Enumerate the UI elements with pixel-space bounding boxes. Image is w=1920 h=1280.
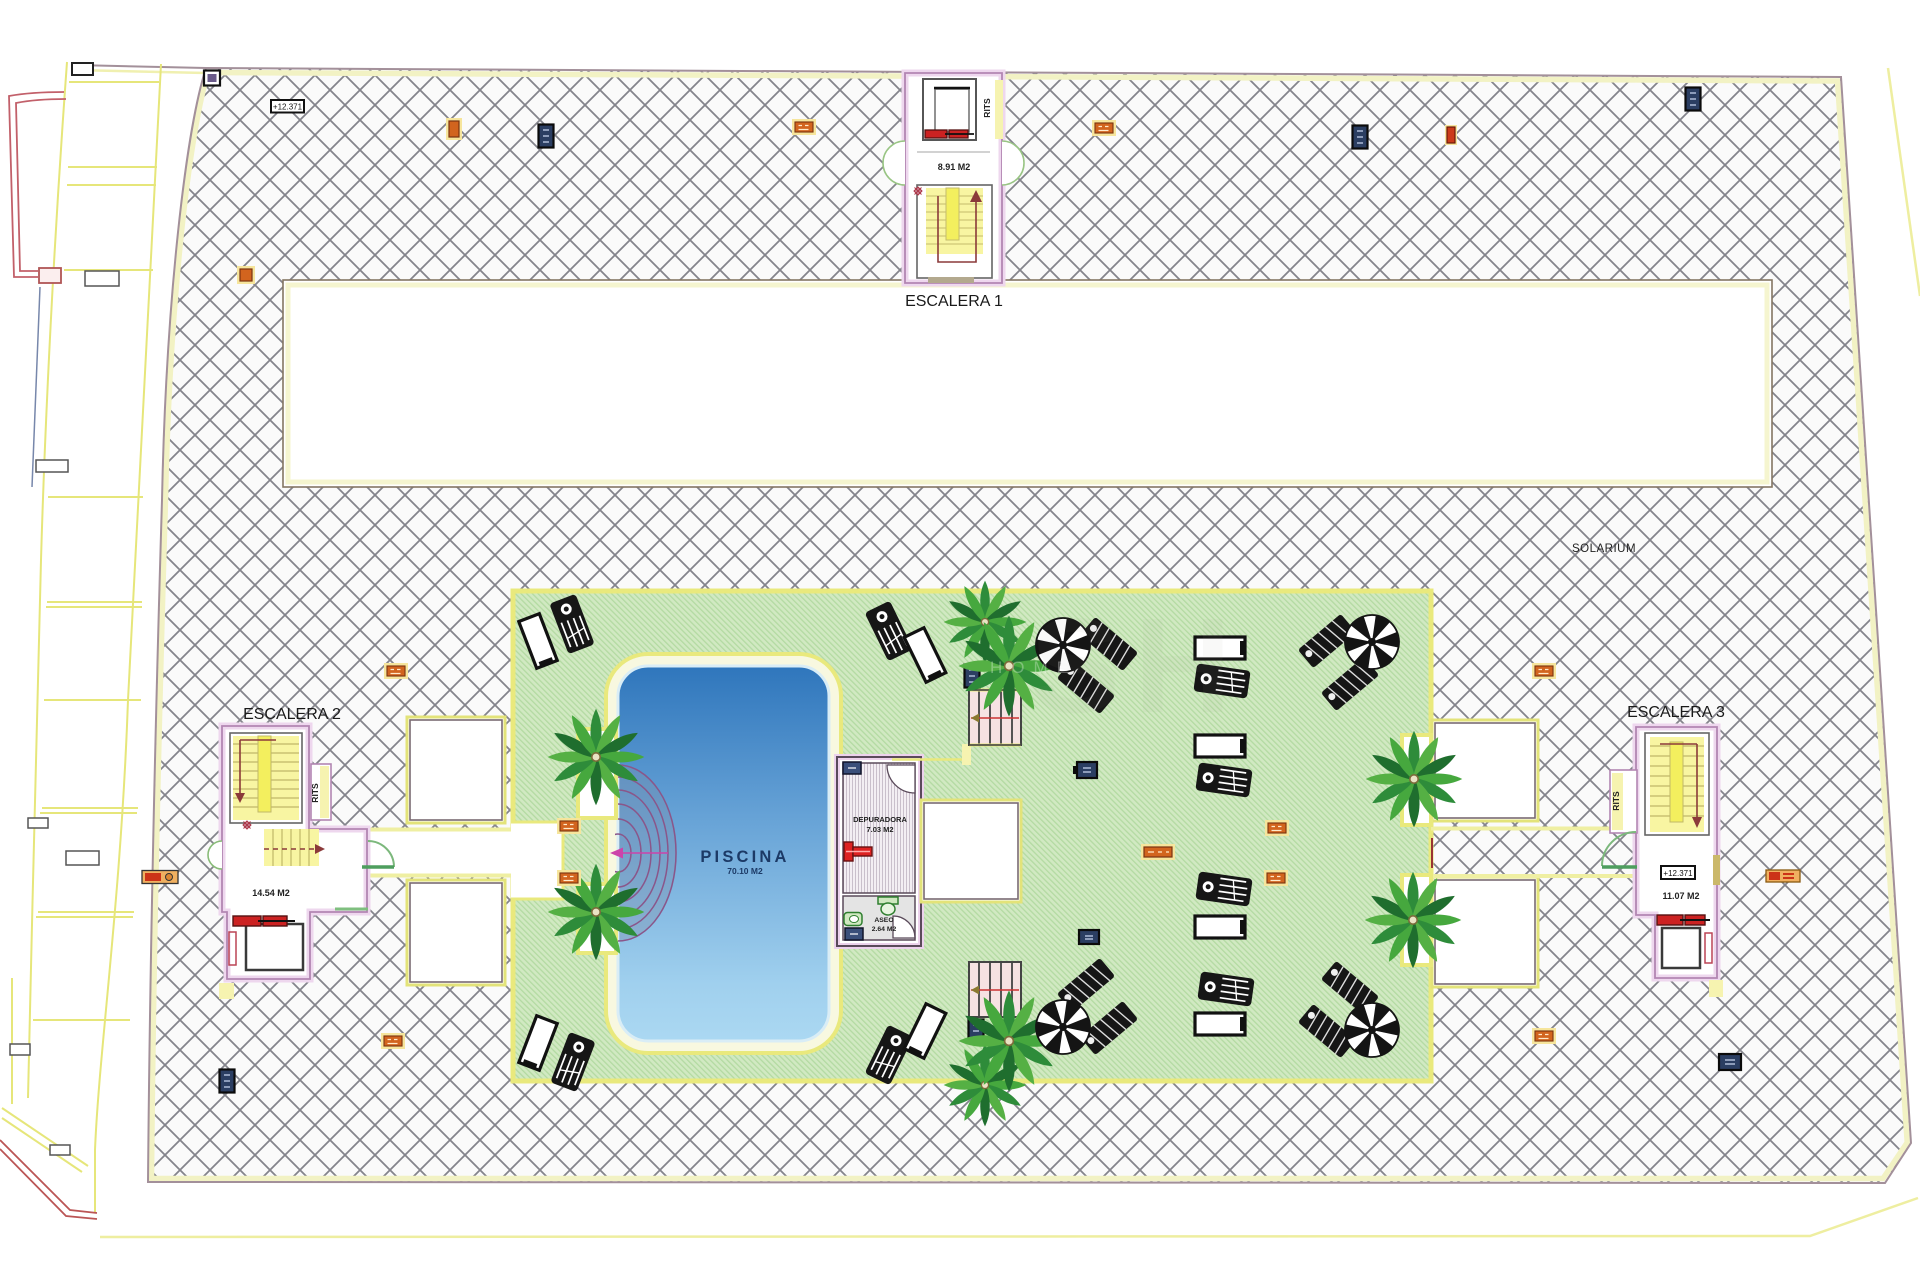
svg-text:ESCALERA 2: ESCALERA 2 bbox=[243, 706, 341, 723]
svg-text:11.07 M2: 11.07 M2 bbox=[1662, 891, 1699, 901]
svg-text:RITS: RITS bbox=[982, 98, 992, 118]
svg-text:PISCINA: PISCINA bbox=[700, 848, 789, 866]
svg-text:+12.371: +12.371 bbox=[1663, 869, 1693, 878]
svg-text:RITS: RITS bbox=[1611, 791, 1621, 811]
svg-text:8.91 M2: 8.91 M2 bbox=[938, 162, 971, 172]
svg-text:+12.371: +12.371 bbox=[273, 103, 303, 112]
svg-text:7.03 M2: 7.03 M2 bbox=[866, 825, 893, 834]
svg-text:70.10 M2: 70.10 M2 bbox=[727, 866, 763, 876]
svg-text:SOLARIUM: SOLARIUM bbox=[1572, 543, 1636, 555]
svg-text:ASEO: ASEO bbox=[874, 917, 893, 924]
svg-text:RITS: RITS bbox=[310, 783, 320, 803]
svg-text:DEPURADORA: DEPURADORA bbox=[853, 815, 907, 824]
svg-text:HOME: HOME bbox=[990, 658, 1077, 677]
svg-text:ESCALERA 3: ESCALERA 3 bbox=[1627, 704, 1725, 721]
svg-text:2.64 M2: 2.64 M2 bbox=[872, 926, 897, 933]
svg-text:14.54 M2: 14.54 M2 bbox=[252, 888, 290, 898]
svg-text:ESCALERA 1: ESCALERA 1 bbox=[905, 293, 1003, 310]
